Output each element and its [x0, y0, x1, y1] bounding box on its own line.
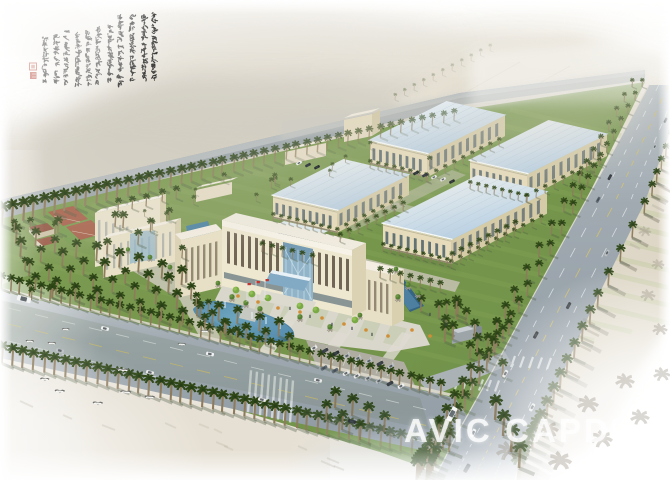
svg-text:AVIC CAPDI: AVIC CAPDI	[404, 412, 623, 449]
